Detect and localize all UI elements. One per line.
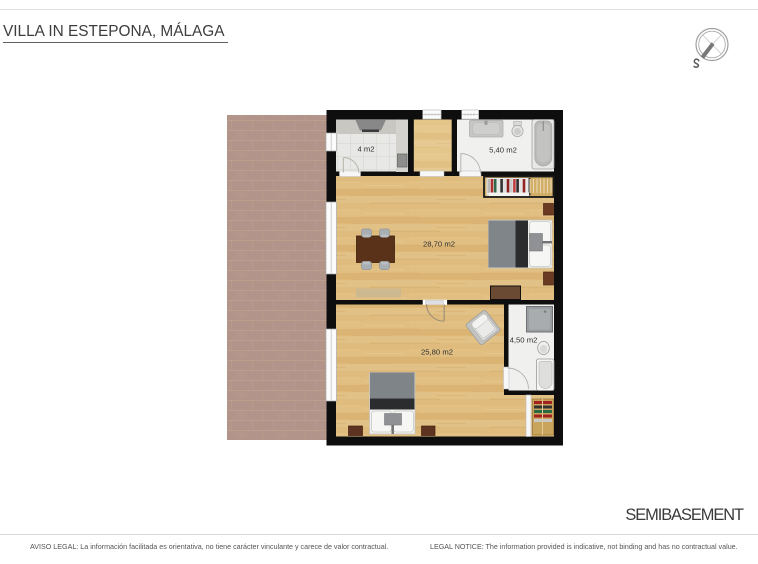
svg-text:4,50 m2: 4,50 m2 [510,336,538,345]
svg-text:25,80 m2: 25,80 m2 [421,348,453,357]
svg-text:28,70 m2: 28,70 m2 [423,240,455,249]
svg-text:5,40 m2: 5,40 m2 [489,146,517,155]
svg-text:4 m2: 4 m2 [357,145,374,154]
